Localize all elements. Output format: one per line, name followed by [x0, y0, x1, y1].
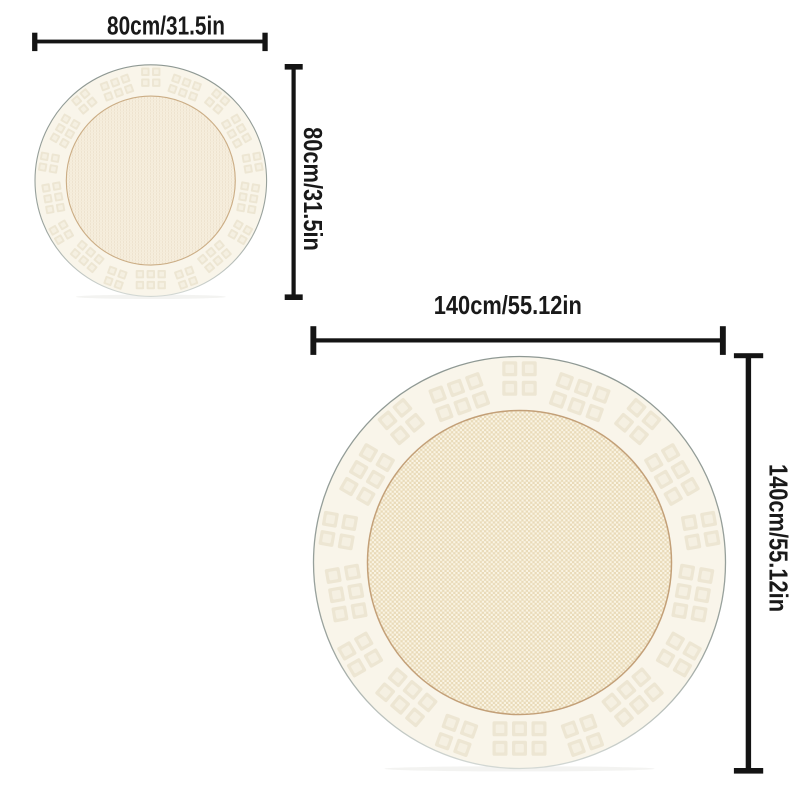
svg-text:80cm/31.5in: 80cm/31.5in	[298, 127, 327, 251]
svg-text:80cm/31.5in: 80cm/31.5in	[107, 11, 225, 40]
svg-text:140cm/55.12in: 140cm/55.12in	[763, 464, 792, 612]
svg-text:140cm/55.12in: 140cm/55.12in	[434, 291, 582, 320]
